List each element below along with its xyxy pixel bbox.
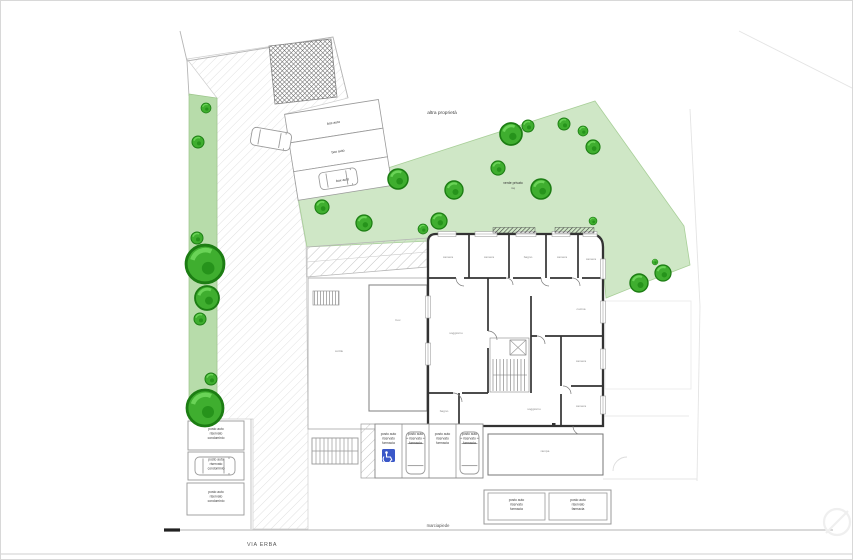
- parking-label-line: condominio: [208, 436, 225, 440]
- parking-label: posto autoriservatofarmacia: [408, 432, 424, 445]
- room-label: bagno: [524, 255, 533, 259]
- parking-label-line: riservato: [409, 436, 422, 440]
- parking-label-line: farmacia: [510, 507, 523, 511]
- room-label: camera: [576, 359, 587, 363]
- parking-label-line: farmacia: [382, 441, 395, 445]
- parking-label: posto autoriservatofarmacia: [462, 432, 478, 445]
- private-green-label: verde privato: [503, 181, 523, 185]
- room-label: cortile: [335, 349, 344, 353]
- room-label: box: [396, 318, 401, 322]
- bottom-structures: posto autoriservatofarmacia posto autori…: [187, 419, 611, 529]
- parking-label-line: riservato: [572, 502, 585, 506]
- parking-label-line: farmacia: [409, 441, 422, 445]
- parking-label: posto autoriservatocondominio: [208, 490, 225, 503]
- room-label: camera: [586, 257, 597, 261]
- site-plan-drawing: posto autoriservatofarmacia posto autori…: [1, 1, 853, 560]
- parking-label-line: farmacia: [463, 441, 476, 445]
- wall-pier: [552, 423, 556, 427]
- parking-label: posto autoriservatocondominio: [208, 427, 225, 440]
- parking-label: posto autoriservatofarmacia: [570, 498, 586, 511]
- parking-label-line: riservato: [463, 436, 476, 440]
- parking-label-line: posto auto: [570, 498, 586, 502]
- site-plan-page: posto autoriservatofarmacia posto autori…: [0, 0, 853, 560]
- ramp-room: rampa: [488, 434, 603, 475]
- box-auto-spots: box auto box auto box auto: [285, 100, 392, 201]
- parking-label-line: condominio: [208, 499, 225, 503]
- pharmacy-parking-bottom: posto autoriservatofarmacia posto autori…: [484, 490, 611, 524]
- room-label: camera: [484, 255, 495, 259]
- parking-label-line: riservato: [510, 502, 523, 506]
- road: marciapiede VIA ERBA: [1, 509, 853, 554]
- parking-label-line: farmacia: [436, 441, 449, 445]
- parking-label: posto autoriservatocondominio: [208, 458, 225, 471]
- room-label: rampa: [541, 449, 550, 453]
- sidewalk-label: marciapiede: [427, 523, 450, 528]
- manhole-symbol: [824, 509, 850, 535]
- private-green-sub-label: mq: [511, 186, 515, 190]
- parking-label-line: posto auto: [208, 458, 224, 462]
- parking-label-line: riservato: [210, 462, 223, 466]
- parking-label-line: condominio: [208, 466, 225, 470]
- parking-label-line: riservato: [382, 436, 395, 440]
- parking-label-line: farmacia: [572, 507, 585, 511]
- parking-label: posto autoriservatofarmacia: [435, 432, 451, 445]
- room-label: soggiorno: [449, 331, 463, 335]
- parking-label-line: riservato: [210, 494, 223, 498]
- room-label: camera: [576, 404, 587, 408]
- parking-label: posto autoriservatofarmacia: [381, 432, 397, 445]
- parking-label-line: posto auto: [509, 498, 525, 502]
- hatched-strip: [361, 424, 375, 478]
- parking-label-line: posto auto: [208, 427, 224, 431]
- parking-label: posto autoriservatofarmacia: [509, 498, 525, 511]
- parking-label-line: posto auto: [435, 432, 451, 436]
- parking-label-line: posto auto: [381, 432, 397, 436]
- room-label: camera: [557, 255, 568, 259]
- parking-label-line: riservato: [210, 431, 223, 435]
- parking-label-line: posto auto: [408, 432, 424, 436]
- room-label: cucina: [577, 307, 586, 311]
- pharmacy-parking-row: posto autoriservatofarmacia posto autori…: [375, 424, 483, 478]
- parking-label-line: posto auto: [208, 490, 224, 494]
- courtyard: [308, 278, 428, 429]
- parking-label-line: posto auto: [462, 432, 478, 436]
- exterior-stairs: [312, 438, 358, 464]
- other-property-label: altra proprietà: [427, 110, 457, 116]
- room-label: bagno: [440, 409, 449, 413]
- room-label: soggiorno: [527, 407, 541, 411]
- crosshatch-pad: [269, 39, 337, 104]
- grate-icon: [313, 291, 339, 305]
- room-label: camera: [443, 255, 454, 259]
- handicap-badge: [382, 449, 395, 463]
- condo-parking-column: posto autoriservatocondominio posto auto…: [187, 421, 244, 515]
- street-label: VIA ERBA: [247, 542, 277, 548]
- parking-label-line: riservato: [436, 436, 449, 440]
